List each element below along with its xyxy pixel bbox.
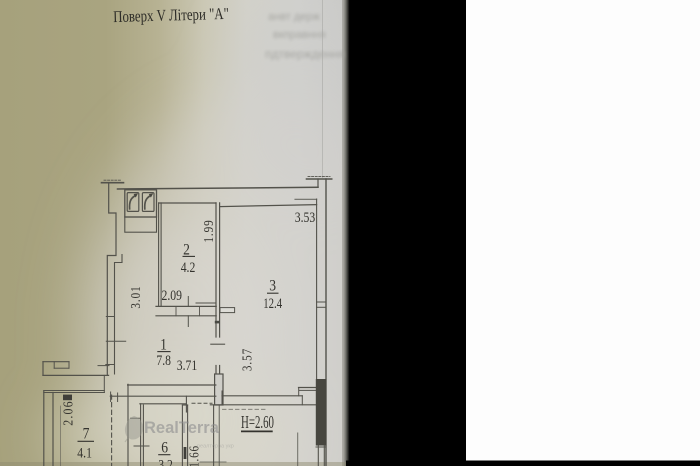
svg-text:пдтверждення: пдтверждення <box>265 47 345 61</box>
svg-text:3.01: 3.01 <box>128 285 143 308</box>
svg-text:7: 7 <box>83 426 90 443</box>
svg-text:12.4: 12.4 <box>263 294 282 311</box>
svg-text:3.57: 3.57 <box>239 348 254 371</box>
svg-text:RealTerra: RealTerra <box>144 419 220 437</box>
svg-text:реалтерра укр: реалтерра укр <box>197 444 234 450</box>
svg-text:3.71: 3.71 <box>177 356 197 373</box>
svg-text:7.8: 7.8 <box>156 351 171 368</box>
svg-text:2.09: 2.09 <box>161 287 182 304</box>
svg-text:4.2: 4.2 <box>181 259 196 276</box>
svg-text:2.06: 2.06 <box>59 400 75 426</box>
svg-text:3.2: 3.2 <box>158 456 173 466</box>
svg-text:анвт держ: анвт держ <box>268 11 321 23</box>
svg-text:Н=2.60: Н=2.60 <box>241 414 274 433</box>
svg-text:3.53: 3.53 <box>295 209 316 226</box>
svg-text:Поверх V Літери "А": Поверх V Літери "А" <box>113 6 229 27</box>
svg-text:вкправння: вкправння <box>273 29 326 41</box>
svg-text:4.1: 4.1 <box>77 444 92 461</box>
svg-text:3: 3 <box>269 278 276 295</box>
svg-text:1.99: 1.99 <box>201 219 216 242</box>
